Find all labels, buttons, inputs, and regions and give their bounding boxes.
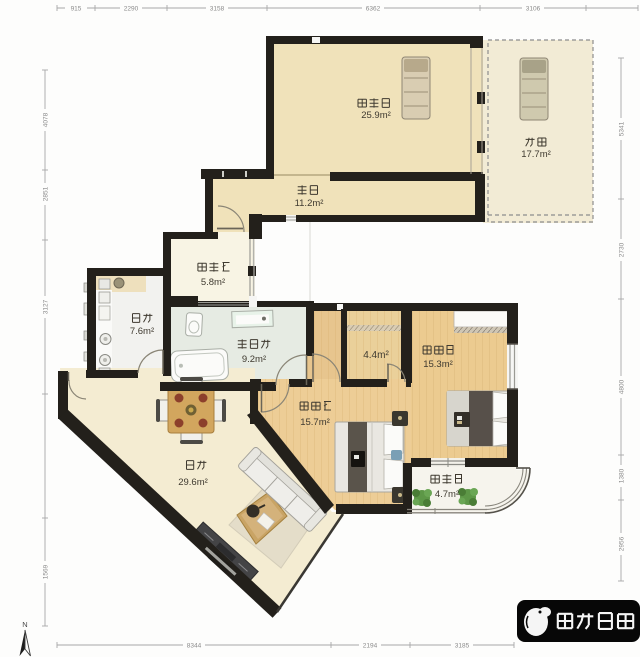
svg-text:915: 915 bbox=[71, 6, 82, 13]
svg-text:15.3m²: 15.3m² bbox=[423, 359, 453, 370]
svg-text:7.6m²: 7.6m² bbox=[130, 326, 154, 337]
svg-text:9.2m²: 9.2m² bbox=[242, 354, 266, 365]
svg-text:4.4m²: 4.4m² bbox=[363, 350, 389, 361]
svg-text:3127: 3127 bbox=[43, 299, 50, 314]
svg-text:1380: 1380 bbox=[619, 468, 626, 483]
svg-text:2730: 2730 bbox=[619, 242, 626, 257]
svg-text:2851: 2851 bbox=[43, 186, 50, 201]
svg-text:2956: 2956 bbox=[619, 536, 626, 551]
svg-text:15.7m²: 15.7m² bbox=[300, 417, 330, 428]
svg-text:8344: 8344 bbox=[187, 643, 202, 650]
svg-text:3158: 3158 bbox=[210, 6, 225, 13]
svg-text:N: N bbox=[22, 620, 27, 629]
svg-text:4800: 4800 bbox=[619, 379, 626, 394]
svg-text:17.7m²: 17.7m² bbox=[521, 149, 551, 160]
svg-text:4.7m²: 4.7m² bbox=[435, 489, 459, 500]
svg-text:1569: 1569 bbox=[43, 564, 50, 579]
svg-text:3106: 3106 bbox=[526, 6, 541, 13]
svg-text:3185: 3185 bbox=[455, 643, 470, 650]
svg-text:25.9m²: 25.9m² bbox=[361, 110, 391, 121]
svg-text:2290: 2290 bbox=[124, 6, 139, 13]
svg-text:5341: 5341 bbox=[619, 121, 626, 136]
svg-text:4078: 4078 bbox=[43, 112, 50, 127]
svg-text:29.6m²: 29.6m² bbox=[178, 477, 208, 488]
svg-text:2194: 2194 bbox=[363, 643, 378, 650]
svg-text:5.8m²: 5.8m² bbox=[201, 277, 225, 288]
svg-text:11.2m²: 11.2m² bbox=[295, 198, 324, 209]
svg-text:6362: 6362 bbox=[366, 6, 381, 13]
